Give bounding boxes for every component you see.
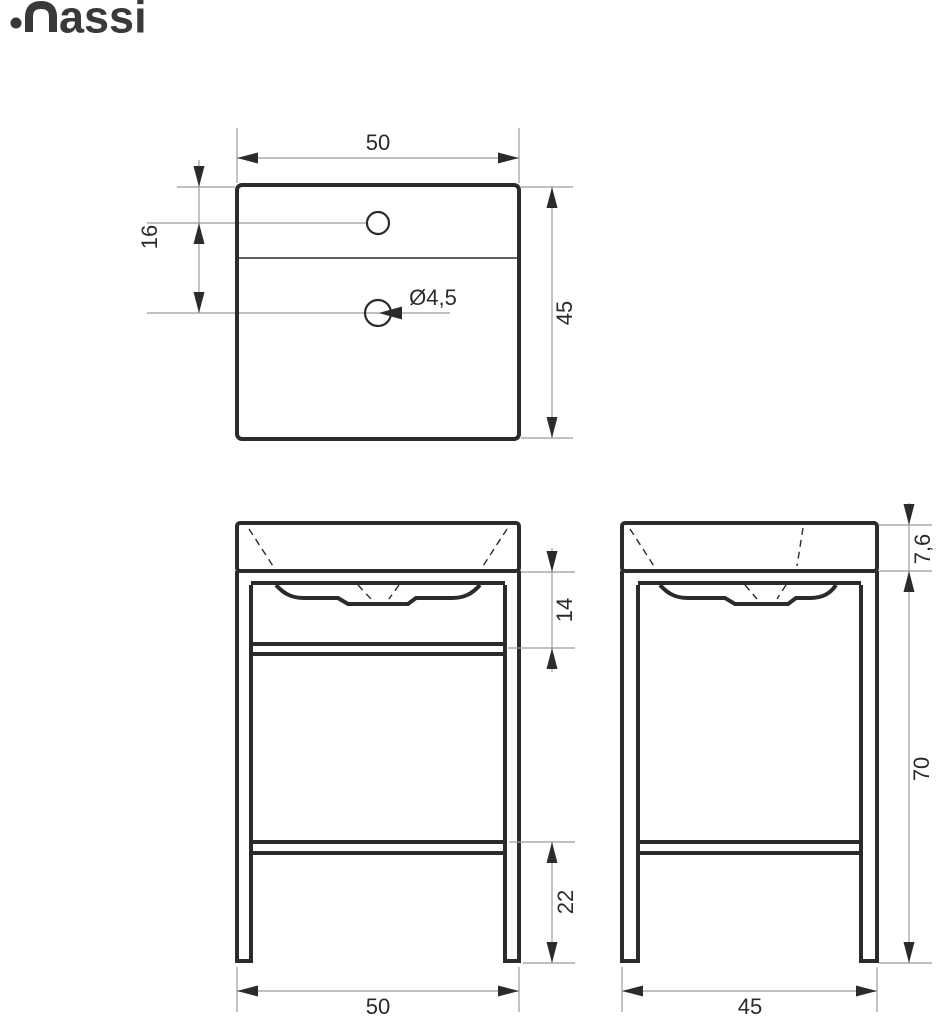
technical-drawing: assi Ø4,5 50 45	[0, 0, 940, 1020]
basin-hidden-edge	[630, 529, 654, 566]
side-depth-label: 45	[738, 994, 762, 1019]
hole-spacing-label: 16	[137, 225, 162, 249]
arrow-left-icon	[237, 986, 258, 997]
arrow-down-icon	[194, 292, 205, 313]
top-width-label: 50	[366, 130, 390, 155]
basin-hidden-edge	[483, 529, 507, 566]
drain-hidden-edge	[389, 585, 399, 599]
top-view: Ø4,5 50 45 16	[137, 128, 577, 439]
arrow-left-icon	[622, 986, 643, 997]
arrow-up-icon	[547, 648, 558, 669]
arrow-up-icon	[194, 223, 205, 244]
arrow-left-icon	[237, 153, 258, 164]
stand-front-leg	[622, 571, 638, 961]
arrow-down-icon	[194, 166, 205, 187]
dimension-top-depth: 45	[521, 187, 577, 438]
drain-hidden-edge	[745, 585, 757, 599]
dimension-hole-spacing: 16	[137, 160, 235, 313]
drain-hidden-edge	[777, 585, 786, 599]
basin-to-bar-label: 14	[552, 598, 577, 622]
basin-side-outline	[622, 523, 877, 571]
logo-dot-icon	[11, 18, 22, 29]
stand-left-leg	[237, 571, 251, 961]
arrow-up-icon	[547, 187, 558, 208]
arrow-down-icon	[547, 417, 558, 438]
arrow-right-icon	[498, 153, 519, 164]
arrow-down-icon	[547, 551, 558, 572]
stand-right-leg	[505, 571, 519, 961]
basin-underside-profile	[276, 585, 480, 604]
front-view: 14 22 50	[237, 523, 578, 1019]
basin-height-label: 7,6	[910, 534, 935, 565]
massi-logo: assi	[11, 0, 147, 43]
arrow-down-icon	[904, 504, 915, 525]
basin-hidden-edge	[249, 529, 273, 566]
logo-wordmark: assi	[59, 0, 147, 43]
logo-m-arch-icon	[29, 5, 53, 32]
dimension-top-width: 50	[237, 128, 519, 183]
hole-diameter-label: Ø4,5	[409, 285, 457, 310]
arrow-right-icon	[856, 986, 877, 997]
dimension-side-depth: 45	[622, 967, 877, 1019]
top-depth-label: 45	[552, 301, 577, 325]
arrow-up-icon	[904, 571, 915, 592]
arrow-up-icon	[547, 842, 558, 863]
front-width-label: 50	[366, 994, 390, 1019]
stand-back-leg	[861, 571, 877, 961]
drain-hidden-edge	[358, 585, 371, 599]
arrow-down-icon	[547, 942, 558, 963]
side-view: 7,6 70 45	[622, 503, 935, 1019]
dimension-front-width: 50	[237, 967, 519, 1019]
arrow-down-icon	[904, 942, 915, 963]
basin-hidden-edge	[797, 528, 803, 566]
tap-hole	[367, 212, 389, 234]
basin-front-outline	[237, 523, 519, 571]
dimension-basin-and-stand-height: 7,6 70	[879, 503, 935, 963]
shelf-to-floor-label: 22	[553, 890, 578, 914]
arrow-right-icon	[498, 986, 519, 997]
stand-height-label: 70	[909, 757, 934, 781]
